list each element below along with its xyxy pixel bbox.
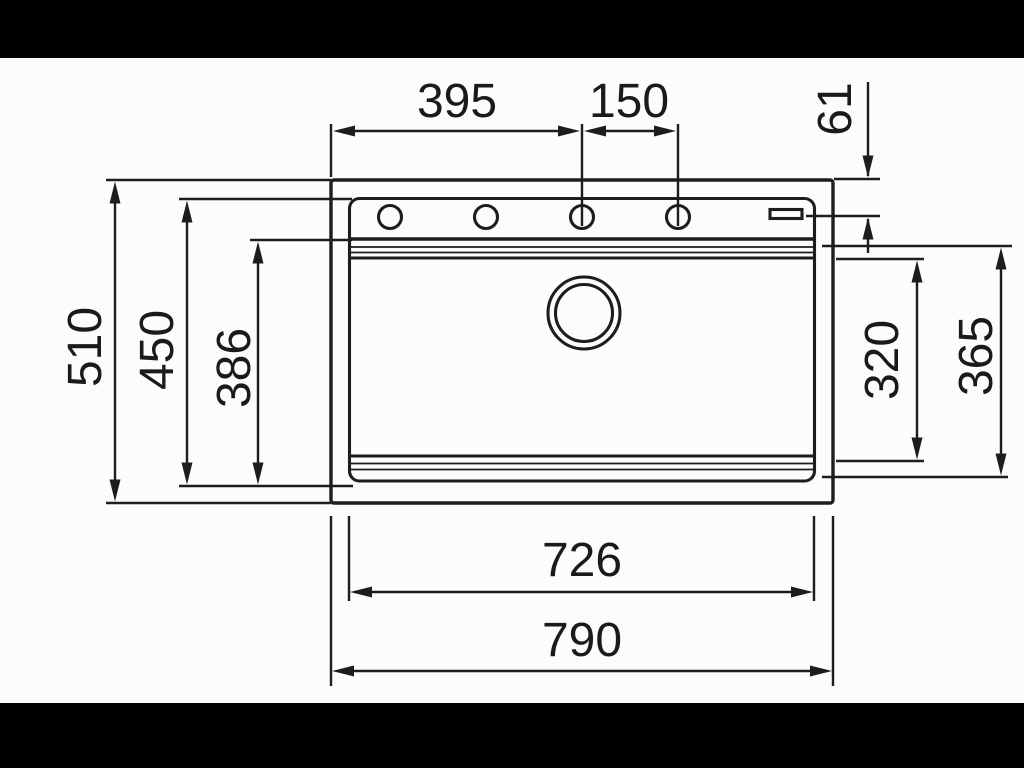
dimension-labels: 395 150 61 510 450 386 320 365 726 790 [59,75,1003,667]
arrowhead-365-up [996,248,1007,270]
arrowhead-386-up [253,242,264,264]
arrowhead-386-down [253,463,264,485]
arrowhead-510-up [110,182,121,204]
sink-technical-drawing: 395 150 61 510 450 386 320 365 726 790 [0,0,1024,768]
arrowhead-320-up [912,261,923,283]
screenshot-root: 395 150 61 510 450 386 320 365 726 790 [0,0,1024,768]
dim-label-510: 510 [59,307,112,387]
letterbox-bottom [0,703,1024,768]
dim-label-790: 790 [542,614,622,667]
waste-control-slot [770,210,802,219]
faucet-hole-2 [475,206,498,229]
arrowhead-395-right [558,126,580,137]
arrowhead-510-down [110,480,121,502]
dim-label-395: 395 [417,75,497,128]
drain-outer-circle [548,277,620,349]
letterbox-top [0,0,1024,58]
dim-label-365: 365 [950,316,1003,396]
arrowhead-726-left [350,587,372,598]
arrowhead-726-right [791,587,813,598]
arrowhead-395-left [333,126,355,137]
faucet-hole-1 [379,206,402,229]
arrowhead-450-down [182,463,193,485]
arrowhead-365-down [996,454,1007,476]
dim-label-386: 386 [208,328,261,408]
arrowhead-320-down [912,438,923,460]
arrowhead-61-up [863,218,874,240]
dim-label-726: 726 [542,534,622,587]
sink-outline [331,180,833,503]
dim-label-450: 450 [131,310,184,390]
sink-rim-edge [350,199,815,482]
dim-label-320: 320 [856,320,909,400]
arrowhead-61-down [863,156,874,178]
drain-inner-circle [556,285,613,342]
arrowhead-450-up [182,201,193,223]
dim-label-150: 150 [589,75,669,128]
arrowhead-790-left [332,666,354,677]
arrowhead-790-right [810,666,832,677]
dim-label-61: 61 [809,82,862,135]
